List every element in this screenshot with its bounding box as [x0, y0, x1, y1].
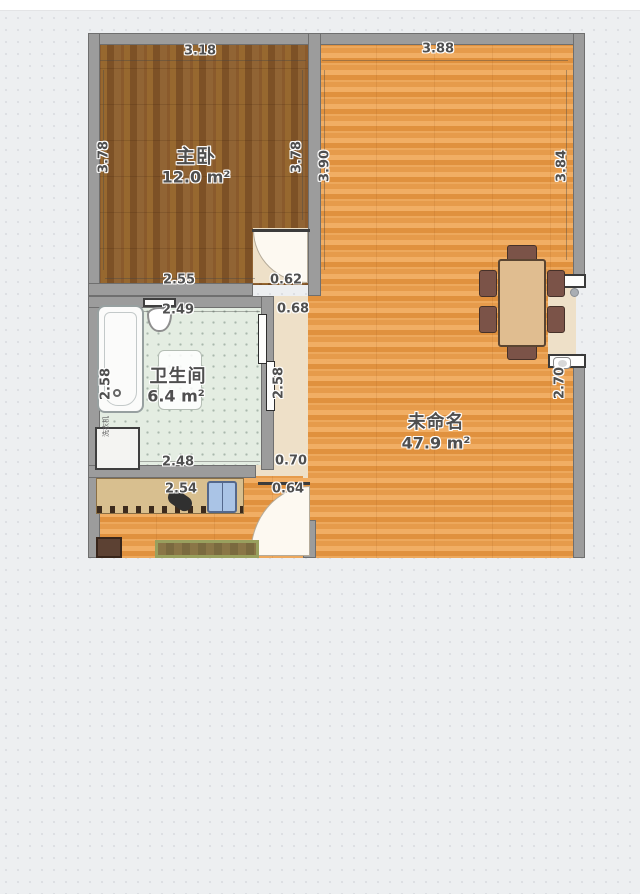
dim-bedroom-bottom: 2.55: [163, 273, 195, 288]
dim-corridor-top: 0.68: [277, 302, 309, 317]
dim-bath-left: 2.58: [99, 368, 114, 400]
dining-table[interactable]: [498, 259, 546, 347]
dim-living-top: 3.88: [422, 42, 454, 57]
shirt-collar-line: [222, 483, 223, 511]
master-bedroom-area: 12.0 m²: [162, 168, 231, 187]
dim-wardrobe: 2.54: [165, 482, 197, 497]
dim-bedroom-door: 0.62: [270, 273, 302, 288]
area-unit-icon: m²: [207, 168, 231, 187]
nightstand[interactable]: [96, 537, 122, 558]
dim-line-bedroom-top: [100, 60, 306, 61]
dim-bay-window: 2.70: [553, 367, 568, 399]
dining-chair-right-1[interactable]: [547, 270, 565, 297]
living-room-name: 未命名: [408, 408, 465, 434]
floor-plan-page: { "app": {"type": "floor-plan"}, "rooms"…: [0, 0, 640, 894]
living-room-area-value: 47.9: [402, 434, 441, 453]
dim-corridor-bottom: 0.70: [275, 454, 307, 469]
drag-handle-dot[interactable]: [570, 288, 579, 297]
dining-chair-right-2[interactable]: [547, 306, 565, 333]
dim-bedroom-left: 3.78: [97, 141, 112, 173]
dim-bath-top: 2.49: [162, 303, 194, 318]
wall-right-upper[interactable]: [573, 33, 585, 278]
dim-bath-bottom: 2.48: [162, 455, 194, 470]
area-unit-icon: m²: [447, 434, 471, 453]
bathroom-name: 卫生间: [150, 362, 207, 388]
wall-top[interactable]: [88, 33, 585, 45]
dining-chair-left-2[interactable]: [479, 306, 497, 333]
dim-line-living-top: [322, 60, 568, 61]
shirt-icon: [207, 481, 237, 513]
area-unit-icon: m²: [181, 387, 205, 406]
rug[interactable]: [155, 540, 259, 558]
dining-chair-left-1[interactable]: [479, 270, 497, 297]
bedroom-door-leaf[interactable]: [252, 229, 310, 232]
dim-living-right: 3.84: [555, 150, 570, 182]
bathroom-area: 6.4 m²: [147, 387, 205, 406]
floorplan-canvas[interactable]: 洗衣机 3.18 3.88 3.78 3.78 3.90 3.84 2.55 0…: [0, 0, 640, 894]
bathtub-drain: [113, 389, 121, 397]
master-bedroom-name: 主卧: [176, 142, 216, 169]
dim-bedroom-top: 3.18: [184, 44, 216, 59]
master-bedroom-area-value: 12.0: [162, 168, 201, 187]
living-room-area: 47.9 m²: [402, 434, 471, 453]
bathroom-area-value: 6.4: [147, 387, 175, 406]
wall-right-lower[interactable]: [573, 366, 585, 558]
washing-machine-label: 洗衣机: [101, 416, 111, 437]
sliding-door-panel: [258, 314, 267, 364]
dim-corridor-side: 2.58: [272, 367, 287, 399]
vase-inner: [558, 360, 567, 367]
dim-bedroom-right: 3.78: [290, 141, 305, 173]
washing-machine[interactable]: 洗衣机: [95, 427, 140, 470]
dim-bottom-room-door: 0.64: [272, 482, 304, 497]
dim-living-left: 3.90: [318, 150, 333, 182]
